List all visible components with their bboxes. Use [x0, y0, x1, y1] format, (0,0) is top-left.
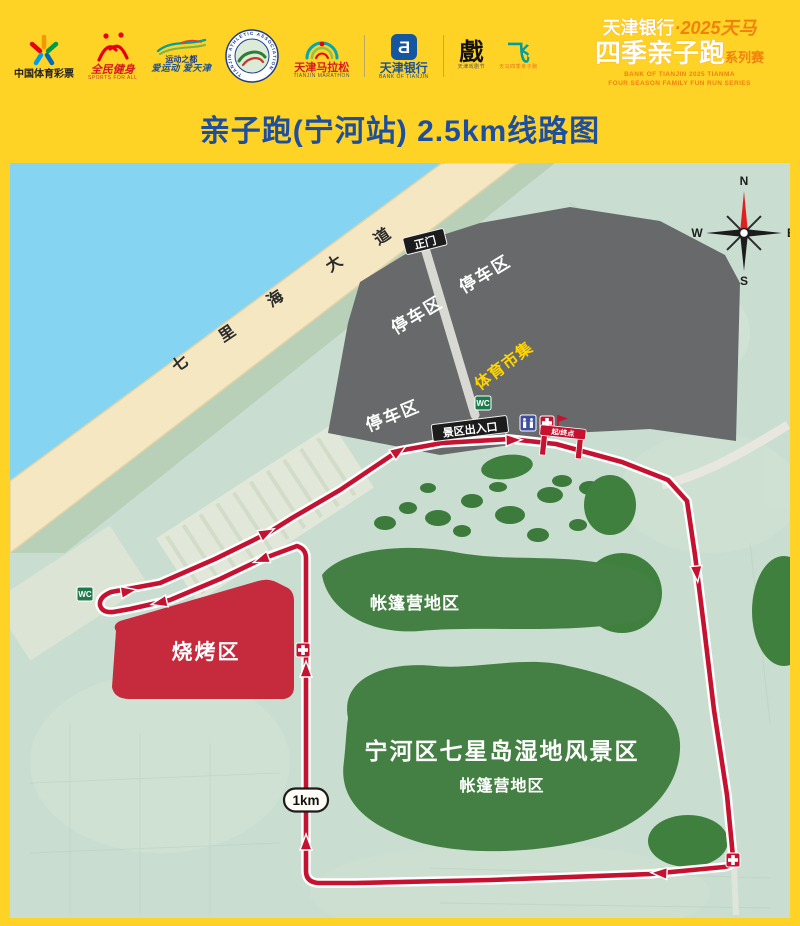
bank-sub: BANK OF TIANJIN	[379, 75, 429, 81]
brand-year: 2025天马	[680, 18, 756, 38]
restroom-icon	[520, 415, 536, 431]
scenic-area-label: 宁河区七星岛湿地风景区	[365, 738, 640, 764]
wc-icon-parking: WC	[475, 396, 491, 410]
sports-for-all-icon	[94, 30, 132, 64]
logo-funrun: 飞 天马四季亲子跑	[499, 42, 538, 71]
wc-text-1: WC	[476, 399, 490, 408]
poster-header: 中国体育彩票 全民健身 SPORTS FOR ALL	[0, 0, 800, 163]
sponsor-logo-row: 中国体育彩票 全民健身 SPORTS FOR ALL	[14, 14, 786, 98]
green-patch-east-1	[584, 475, 636, 535]
logo-tianjin-marathon: 天津马拉松 TIANJIN MARATHON	[293, 32, 350, 80]
compass-south-label: S	[740, 274, 748, 288]
wc-text-2: WC	[78, 590, 92, 599]
sports-for-all-sub: SPORTS FOR ALL	[88, 76, 137, 82]
opera-glyph: 戲	[459, 41, 483, 65]
athletic-association-badge-icon: TIANJIN ATHLETIC ASSOCIATION	[225, 29, 279, 83]
page-title: 亲子跑(宁河站) 2.5km线路图	[14, 106, 786, 150]
logo-divider	[443, 35, 444, 77]
route-map-svg: 七 里 海 大 道 停车区 停车区 停车区 体育市集 帐篷营地区 宁河区七星岛湿…	[10, 163, 790, 918]
brand-line1: 天津银行·2025天马	[577, 18, 782, 39]
brand-series-name: 四季亲子跑	[595, 38, 725, 68]
brand-line2: 四季亲子跑系列赛	[577, 39, 782, 69]
km-marker: 1km	[284, 789, 328, 812]
km-marker-text: 1km	[292, 793, 319, 808]
bank-glyph: Ƌ	[398, 38, 410, 57]
bbq-label: 烧烤区	[172, 641, 241, 664]
south-path	[734, 867, 736, 915]
funrun-glyph: 飞	[507, 42, 530, 65]
funrun-sub: 天马四季亲子跑	[499, 65, 538, 71]
opera-sub: 天津戏剧节	[458, 65, 486, 71]
bank-of-tianjin-icon: Ƌ	[389, 32, 419, 62]
lottery-label: 中国体育彩票	[14, 69, 74, 80]
tent-camp-lower-label: 帐篷营地区	[459, 776, 544, 795]
brand-bank-name: 天津银行	[602, 18, 674, 38]
sport-city-swoosh-icon	[155, 38, 207, 56]
marathon-sub: TIANJIN MARATHON	[293, 74, 350, 80]
logo-sports-for-all: 全民健身 SPORTS FOR ALL	[88, 30, 137, 82]
logo-bank-of-tianjin: Ƌ 天津银行 BANK OF TIANJIN	[379, 32, 429, 81]
tianjin-marathon-icon	[302, 32, 342, 62]
logo-tianjin-opera: 戲 天津戏剧节	[458, 41, 486, 71]
compass-north-label: N	[740, 174, 749, 188]
brand-series-suffix: 系列赛	[725, 50, 764, 65]
compass-west-label: W	[691, 226, 703, 240]
medical-icon-corner	[726, 853, 740, 867]
compass-east-label: E	[787, 226, 790, 240]
sport-city-sub: 爱运动 爱天津	[151, 64, 211, 74]
logo-china-sports-lottery: 中国体育彩票	[14, 33, 74, 80]
brand-english-1: BANK OF TIANJIN 2025 TIANMA	[577, 71, 782, 78]
logo-athletic-association: TIANJIN ATHLETIC ASSOCIATION	[225, 29, 279, 83]
brand-english-2: FOUR SEASON FAMILY FUN RUN SERIES	[577, 80, 782, 87]
bank-label: 天津银行	[380, 62, 428, 75]
logo-divider	[364, 35, 365, 77]
medical-icon-mid	[296, 643, 310, 657]
event-brand-block: 天津银行·2025天马 四季亲子跑系列赛 BANK OF TIANJIN 202…	[577, 18, 782, 88]
wc-icon-turnaround: WC	[77, 587, 93, 601]
green-patch-southeast	[648, 815, 728, 867]
route-map: 七 里 海 大 道 停车区 停车区 停车区 体育市集 帐篷营地区 宁河区七星岛湿…	[10, 163, 790, 918]
sports-lottery-icon	[24, 33, 64, 69]
logo-sport-city: 运动之都 爱运动 爱天津	[151, 38, 211, 75]
tent-camp-upper-label: 帐篷营地区	[370, 593, 460, 613]
